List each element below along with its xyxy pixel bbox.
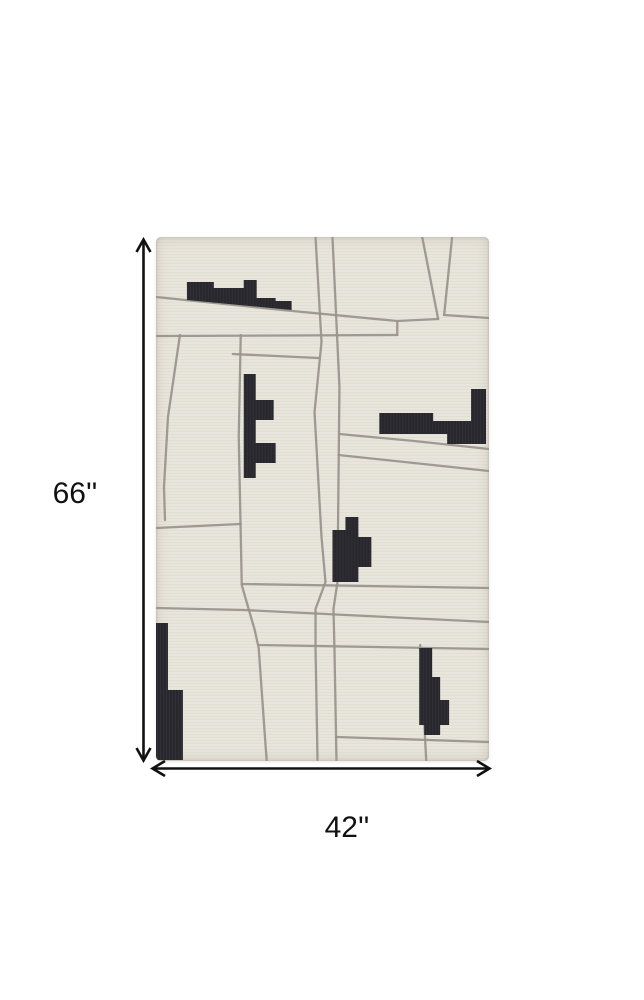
right-arrowhead-icon <box>477 761 490 776</box>
street-bottom-horizontal <box>336 737 489 742</box>
product-dimension-diagram: 66'' 42'' <box>0 0 644 1000</box>
rug-pattern <box>156 237 489 761</box>
street-left-horizontal <box>156 524 241 528</box>
left-arrowhead-icon <box>153 761 166 776</box>
block-bottom-right <box>419 648 449 735</box>
height-dimension-label: 66'' <box>53 477 98 511</box>
block-bottom-left <box>156 623 183 760</box>
block-mid-right <box>379 389 486 444</box>
down-arrowhead-icon <box>137 748 151 761</box>
street-left-vertical <box>239 335 242 584</box>
street-upper-horizontal <box>156 335 397 336</box>
street-topright-slant-left <box>422 237 438 319</box>
street-mid-horizontal-a <box>242 584 489 588</box>
street-far-left-diagonal <box>164 335 180 520</box>
street-mid-horizontal-b <box>156 608 489 622</box>
street-topright-slant-right <box>444 237 452 315</box>
rug-image <box>156 237 489 761</box>
street-lower-horizontal <box>259 645 489 649</box>
street-topright-stub <box>444 315 489 318</box>
street-right-diagonal-b <box>338 455 489 471</box>
width-dimension-label: 42'' <box>325 811 370 845</box>
street-center-vertical-a <box>315 237 326 760</box>
up-arrowhead-icon <box>137 240 151 253</box>
block-mid-left <box>244 374 276 478</box>
street-short-horizontal <box>233 354 319 358</box>
